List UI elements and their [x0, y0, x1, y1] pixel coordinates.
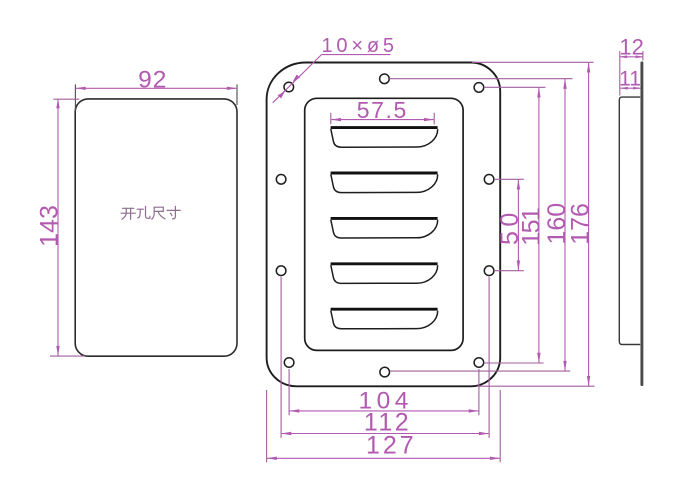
svg-text:127: 127	[366, 431, 417, 459]
svg-text:176: 176	[567, 203, 595, 245]
svg-text:143: 143	[35, 205, 63, 247]
svg-text:11: 11	[619, 67, 641, 90]
svg-text:151: 151	[517, 208, 545, 246]
svg-text:12: 12	[619, 34, 643, 59]
svg-text:10×ø5: 10×ø5	[322, 35, 398, 57]
svg-text:57.5: 57.5	[357, 97, 408, 123]
svg-text:92: 92	[138, 67, 167, 94]
